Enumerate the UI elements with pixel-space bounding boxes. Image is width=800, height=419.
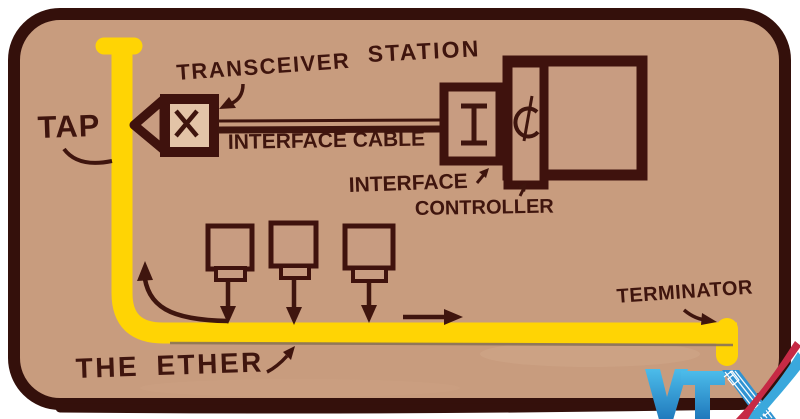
svg-text:TAP: TAP	[37, 108, 101, 145]
svg-text:CONTROLLER: CONTROLLER	[415, 196, 555, 220]
svg-text:THE ETHER: THE ETHER	[75, 346, 264, 384]
svg-text:INTERFACE CABLE: INTERFACE CABLE	[228, 128, 426, 154]
svg-text:INTERFACE: INTERFACE	[348, 170, 468, 197]
